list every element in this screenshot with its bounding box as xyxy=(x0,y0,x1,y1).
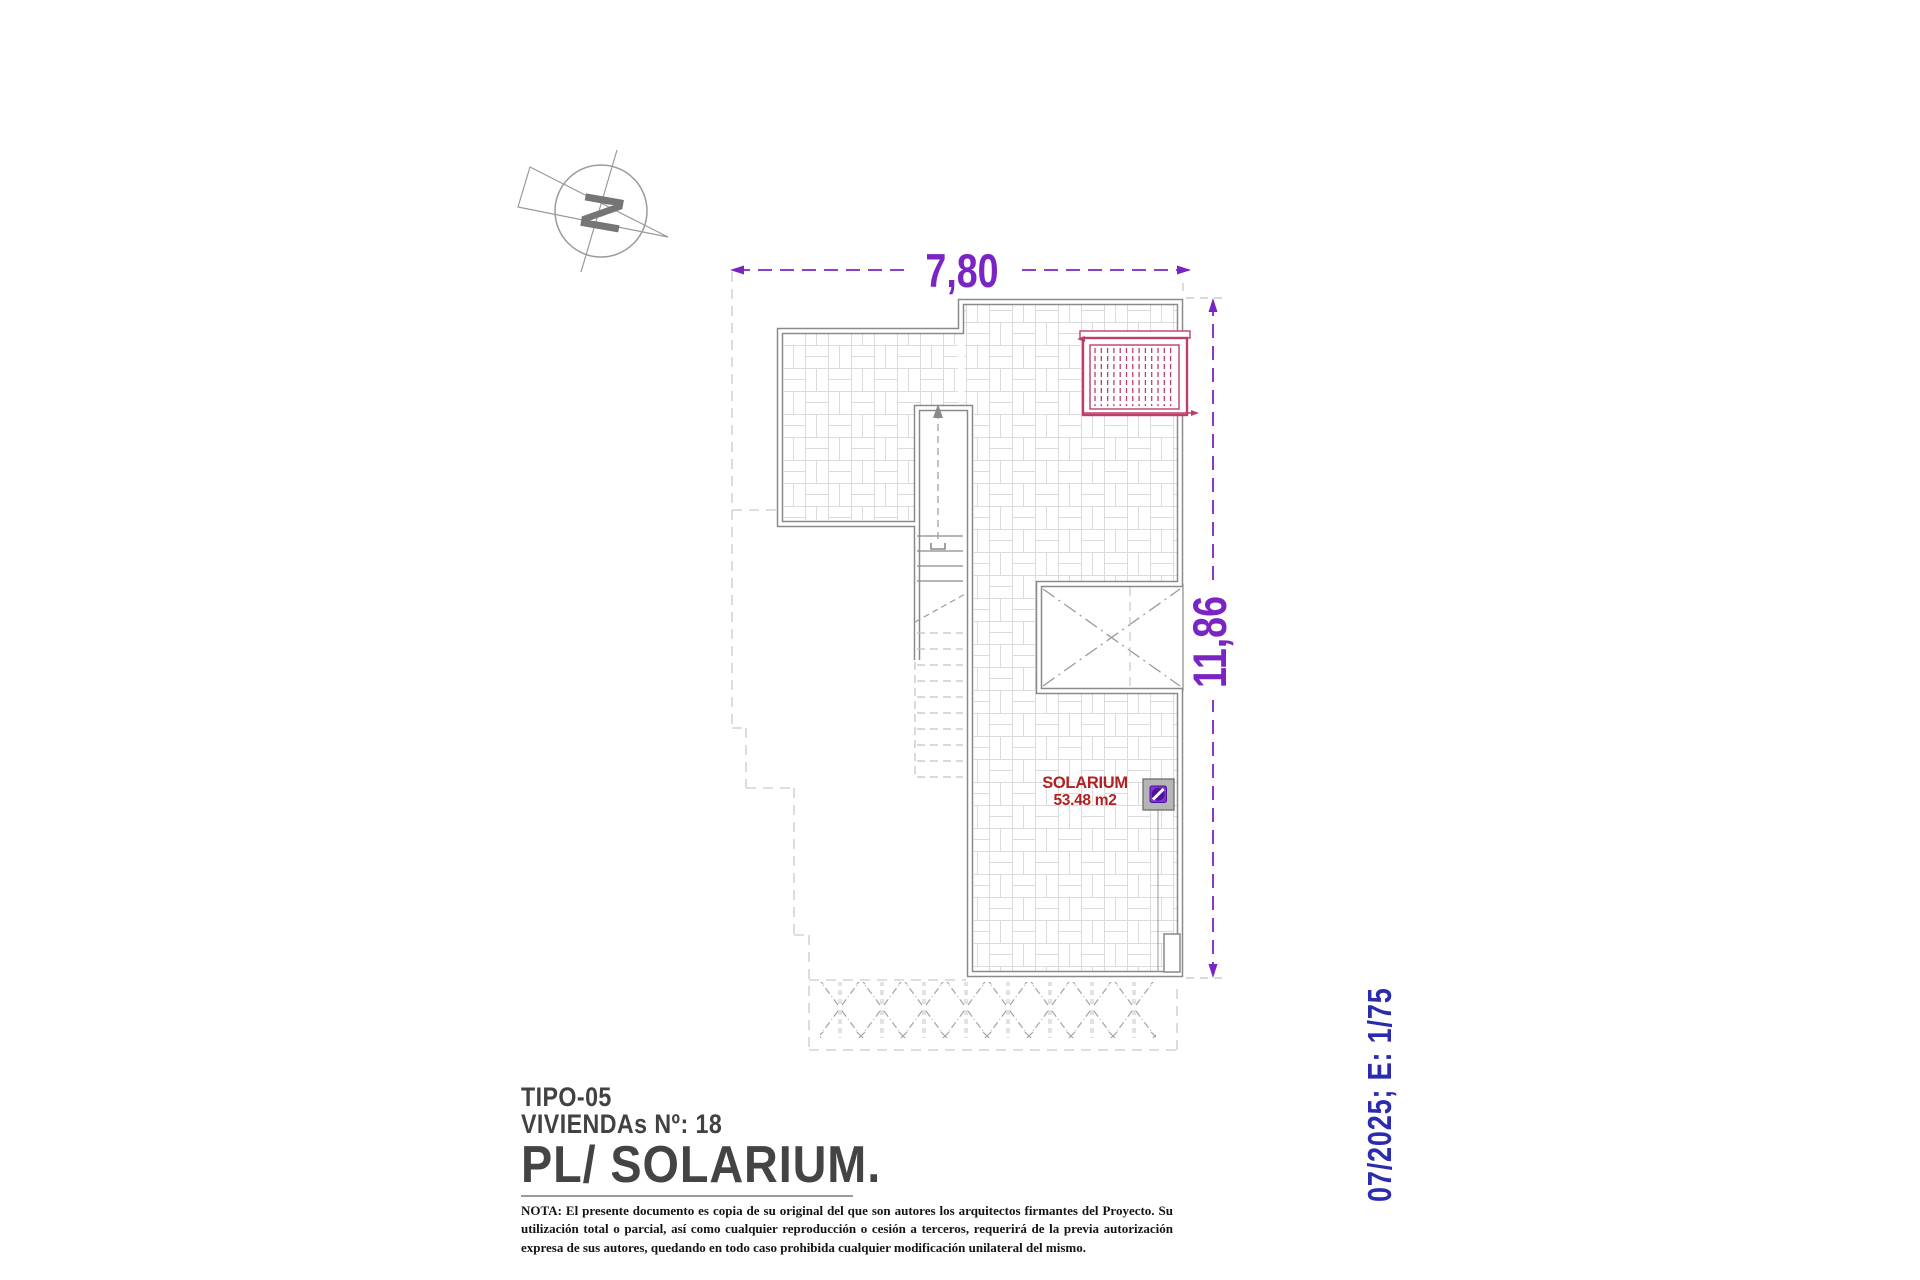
elevator-shaft xyxy=(1043,587,1180,688)
scale-date-label: 07/2025; E: 1/75 xyxy=(1363,987,1399,1202)
dimension-right: 11,86 xyxy=(1184,298,1237,978)
dim-right-arrow-bottom xyxy=(1209,964,1218,978)
title-block: TIPO-05 VIVIENDAs Nº: 18 PL/ SOLARIUM. N… xyxy=(521,1084,1173,1257)
stair-start-mark xyxy=(931,543,945,549)
north-letter: N xyxy=(568,187,637,238)
north-arrow: N xyxy=(518,150,668,272)
room-name-text: SOLARIUM xyxy=(1042,774,1128,792)
floor-left-block xyxy=(784,334,958,520)
stair-treads-hidden xyxy=(915,633,963,778)
dim-right-text: 11,86 xyxy=(1184,596,1237,688)
note-paragraph: NOTA: El presente documento es copia de … xyxy=(521,1202,1173,1257)
dwellings-label: VIVIENDAs Nº: 18 xyxy=(521,1111,722,1137)
pergola xyxy=(1077,331,1199,416)
louver-strip xyxy=(820,982,1156,1038)
pergola-outer xyxy=(1083,338,1187,415)
dim-right-arrow-top xyxy=(1209,298,1218,312)
room-area-text: 53.48 m2 xyxy=(1053,792,1116,809)
stair-break-line xyxy=(915,593,967,622)
staircase xyxy=(915,404,967,778)
type-label: TIPO-05 xyxy=(521,1084,612,1110)
plan-title: PL/ SOLARIUM. xyxy=(521,1138,881,1192)
pergola-arrow-right xyxy=(1191,410,1199,416)
title-divider xyxy=(521,1195,853,1197)
shaft-cross xyxy=(1043,589,1180,686)
page-root: N xyxy=(0,0,1920,1280)
stair-treads-solid xyxy=(917,536,963,581)
room-label: SOLARIUM 53.48 m2 xyxy=(1042,774,1128,809)
dim-top-arrow-right xyxy=(1177,266,1191,275)
dim-top-text: 7,80 xyxy=(925,245,998,298)
dimension-top: 7,80 xyxy=(730,240,1191,298)
corner-pillar xyxy=(1164,934,1180,972)
